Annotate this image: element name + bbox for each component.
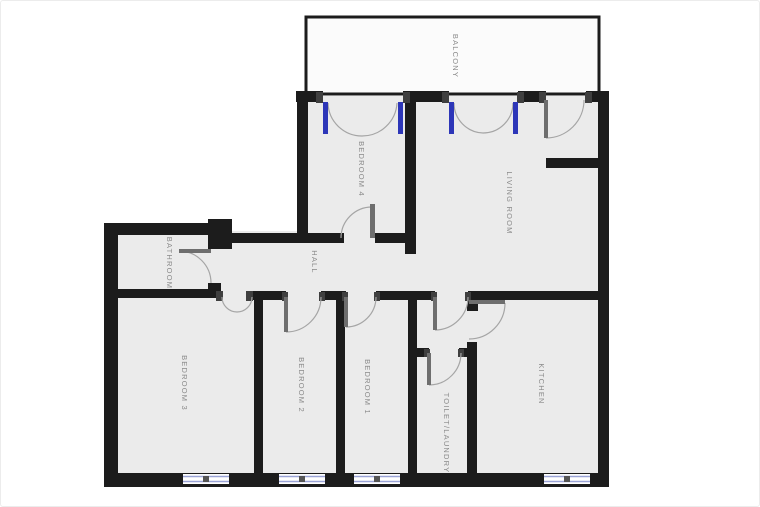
floor-plan: BALCONY BEDROOM 4 LIVING ROOM BATHROOM H… bbox=[1, 1, 760, 507]
room-label-balcony: BALCONY bbox=[451, 34, 460, 78]
door-leaf bbox=[344, 297, 348, 327]
wall-segment bbox=[405, 96, 416, 254]
door-leaf bbox=[544, 100, 548, 138]
room-label-bedroom-3: BEDROOM 3 bbox=[180, 355, 189, 411]
jamb bbox=[442, 92, 449, 103]
door-leaf bbox=[179, 249, 211, 253]
room-label-living-room: LIVING ROOM bbox=[505, 171, 514, 234]
wall-segment bbox=[546, 158, 601, 168]
door-leaf bbox=[427, 353, 431, 385]
wall-segment bbox=[408, 291, 417, 473]
door-leaf bbox=[284, 297, 288, 332]
jamb bbox=[319, 292, 325, 301]
wall-segment bbox=[336, 291, 345, 473]
wall-segment bbox=[376, 291, 435, 300]
glazed-door-leaf bbox=[398, 102, 403, 134]
wall-segment bbox=[226, 233, 308, 243]
wall-segment bbox=[254, 291, 263, 473]
room-fills bbox=[111, 96, 601, 476]
room-label-hall: HALL bbox=[310, 250, 319, 274]
wall-segment bbox=[104, 289, 216, 298]
wall-segment bbox=[104, 223, 216, 235]
floor-plan-image: BALCONY BEDROOM 4 LIVING ROOM BATHROOM H… bbox=[0, 0, 760, 507]
room-label-bedroom-4: BEDROOM 4 bbox=[357, 141, 366, 197]
window-dot bbox=[299, 476, 305, 482]
room-label-bedroom-1: BEDROOM 1 bbox=[363, 359, 372, 415]
door-leaf bbox=[433, 297, 437, 330]
wall-segment bbox=[598, 91, 609, 487]
wall-segment bbox=[297, 91, 308, 241]
glazed-door-leaf bbox=[323, 102, 328, 134]
door-leaf bbox=[469, 300, 505, 304]
window-bedroom-1 bbox=[354, 474, 400, 484]
window-bedroom-3 bbox=[183, 474, 229, 484]
jamb bbox=[517, 92, 524, 103]
room-label-toilet-laundry: TOILET/LAUNDRY bbox=[442, 393, 451, 474]
room-label-bathroom: BATHROOM bbox=[165, 237, 174, 289]
window-dot bbox=[374, 476, 380, 482]
door-leaf bbox=[370, 204, 375, 238]
window-dot bbox=[203, 476, 209, 482]
wall-segment bbox=[308, 233, 344, 243]
window-dot bbox=[564, 476, 570, 482]
window-bedroom-2 bbox=[279, 474, 325, 484]
glazed-door-leaf bbox=[449, 102, 454, 134]
jamb bbox=[374, 292, 380, 301]
jamb bbox=[316, 92, 323, 103]
room-label-kitchen: KITCHEN bbox=[537, 363, 546, 404]
wall-segment bbox=[468, 291, 598, 300]
jamb bbox=[585, 92, 592, 103]
room-label-bedroom-2: BEDROOM 2 bbox=[297, 357, 306, 413]
wall-segment bbox=[104, 223, 118, 487]
glazed-door-leaf bbox=[513, 102, 518, 134]
jamb bbox=[403, 92, 410, 103]
window-kitchen bbox=[544, 474, 590, 484]
wall-segment bbox=[467, 342, 477, 473]
lower-wing-floor bbox=[111, 231, 601, 476]
